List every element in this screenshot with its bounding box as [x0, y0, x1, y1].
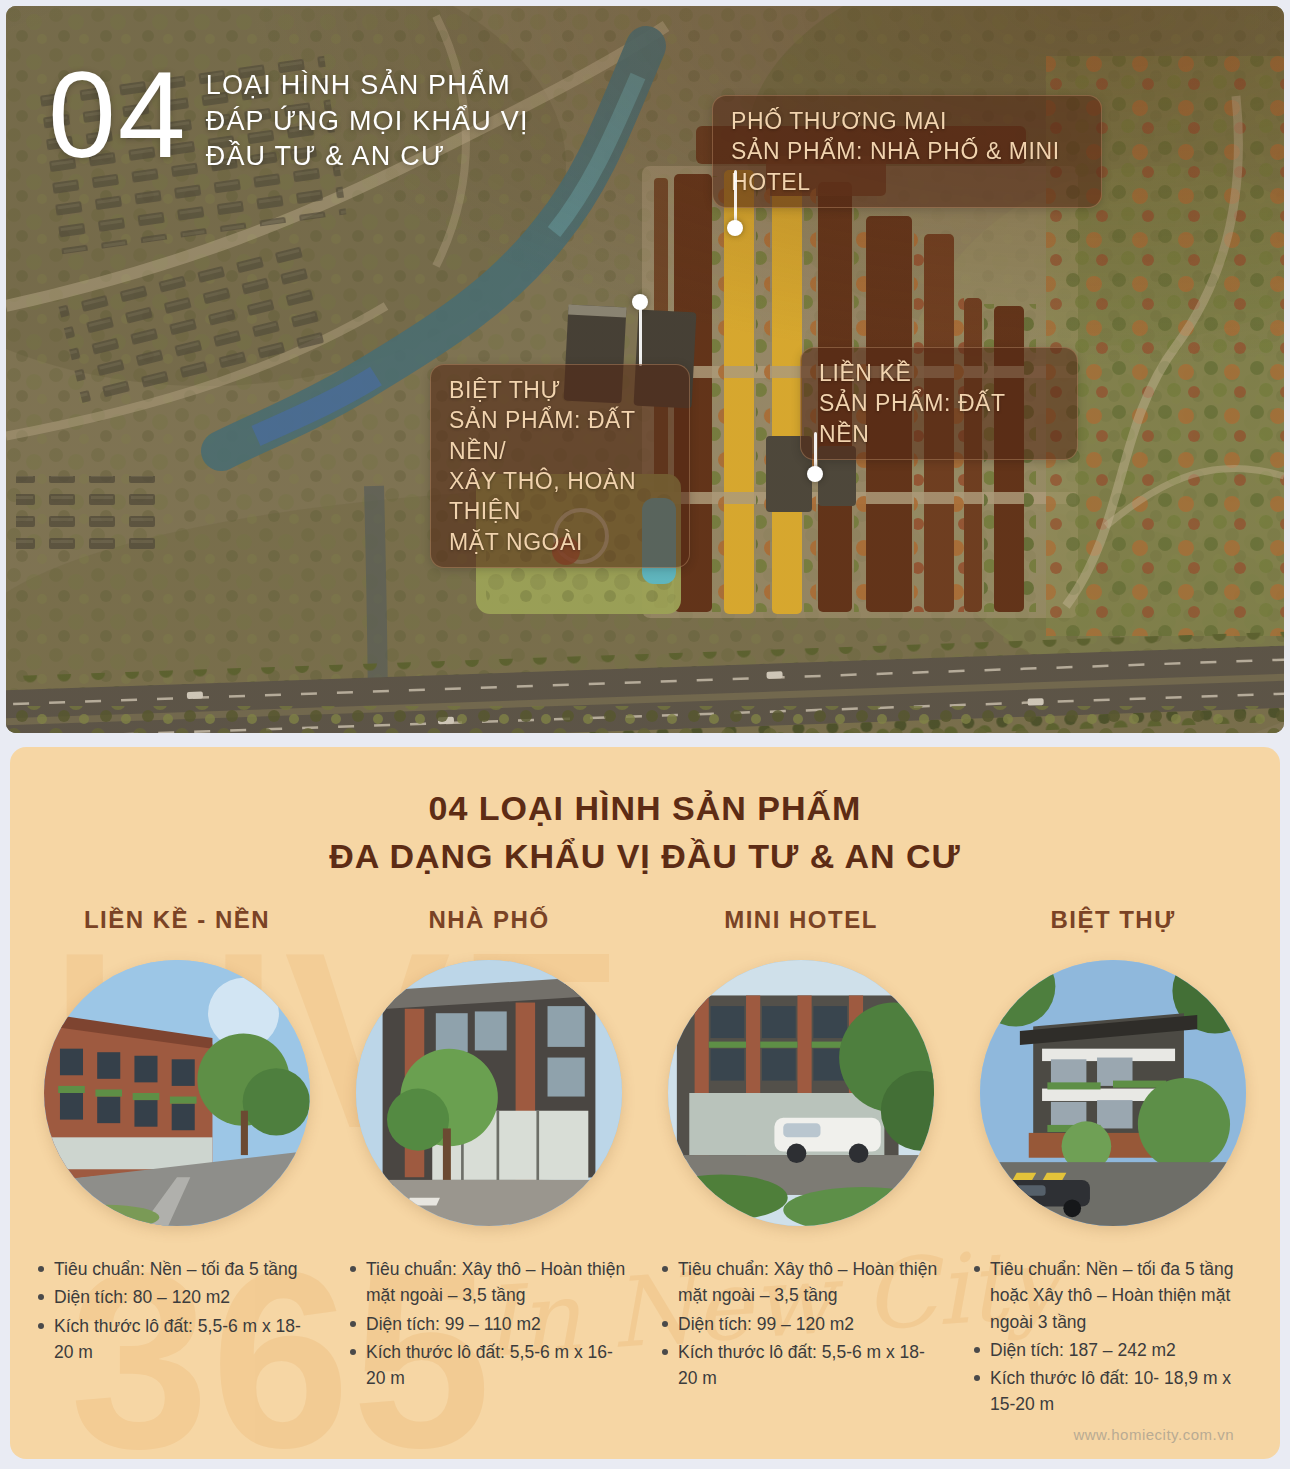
card-title-line-1: 04 LOẠI HÌNH SẢN PHẤM [10, 785, 1280, 833]
leader-line-pho-thuong-mai [734, 170, 737, 222]
photo-biet-thu [980, 960, 1246, 1226]
column-nha-pho: NHÀ PHỐ Tiêu chuẩn: X [340, 906, 638, 1420]
headline-line-2: ĐÁP ỨNG MỌI KHẨU VỊ [206, 104, 529, 140]
spec-list-nha-pho: Tiêu chuẩn: Xây thô – Hoàn thiện mặt ngo… [340, 1256, 638, 1393]
callout-pho-thuong-mai-title: PHỐ THƯƠNG MẠI [731, 106, 1083, 136]
spec-item: Tiêu chuẩn: Nền – tối đa 5 tầng hoặc Xây… [970, 1256, 1256, 1335]
column-biet-thu: BIỆT THỰ [964, 906, 1262, 1420]
spec-item: Diện tích: 187 – 242 m2 [970, 1337, 1256, 1363]
spec-item: Kích thước lô đất: 5,5-6 m x 18-20 m [658, 1339, 944, 1392]
website-link[interactable]: www.homiecity.com.vn [1073, 1426, 1234, 1443]
villa-illustration [980, 960, 1246, 1226]
mini-hotel-illustration [668, 960, 934, 1226]
leader-dot-pho-thuong-mai [727, 220, 743, 236]
townhouse-street-illustration [44, 960, 310, 1226]
callout-biet-thu-sub-3: MẶT NGOÀI [449, 527, 671, 557]
spec-item: Kích thước lô đất: 5,5-6 m x 18-20 m [34, 1313, 320, 1366]
product-columns: LIỀN KỀ - NỀN [28, 906, 1262, 1420]
callout-lien-ke-title: LIỀN KỀ [819, 358, 1059, 388]
spec-list-biet-thu: Tiêu chuẩn: Nền – tối đa 5 tầng hoặc Xây… [964, 1256, 1262, 1420]
photo-mini-hotel [668, 960, 934, 1226]
spec-item: Tiêu chuẩn: Nền – tối đa 5 tầng [34, 1256, 320, 1282]
spec-item: Diện tích: 99 – 110 m2 [346, 1311, 632, 1337]
masterplan-image: 04 LOẠI HÌNH SẢN PHẨM ĐÁP ỨNG MỌI KHẨU V… [6, 6, 1284, 733]
leader-dot-lien-ke [807, 466, 823, 482]
column-heading: NHÀ PHỐ [428, 906, 549, 934]
callout-biet-thu-sub-2: XÂY THÔ, HOÀN THIỆN [449, 466, 671, 527]
spec-item: Diện tích: 80 – 120 m2 [34, 1284, 320, 1310]
column-mini-hotel: MINI HOTEL [652, 906, 950, 1420]
column-lien-ke-nen: LIỀN KỀ - NỀN [28, 906, 326, 1420]
card-title-line-2: ĐA DẠNG KHẨU VỊ ĐẦU TƯ & AN CƯ [10, 833, 1280, 881]
spec-item: Tiêu chuẩn: Xây thô – Hoàn thiện mặt ngo… [346, 1256, 632, 1309]
spec-list-mini-hotel: Tiêu chuẩn: Xây thô – Hoàn thiện mặt ngo… [652, 1256, 950, 1393]
headline-line-3: ĐẦU TƯ & AN CƯ [206, 139, 529, 175]
shophouse-corner-illustration [356, 960, 622, 1226]
spec-item: Diện tích: 99 – 120 m2 [658, 1311, 944, 1337]
column-heading: BIỆT THỰ [1050, 906, 1175, 934]
callout-pho-thuong-mai-sub: SẢN PHẨM: NHÀ PHỐ & MINI HOTEL [731, 136, 1083, 197]
masterplan-headline: 04 LOẠI HÌNH SẢN PHẨM ĐÁP ỨNG MỌI KHẨU V… [48, 54, 529, 176]
callout-lien-ke-sub: SẢN PHẨM: ĐẤT NỀN [819, 388, 1059, 449]
leader-line-biet-thu [639, 308, 642, 366]
section-number: 04 [48, 54, 188, 176]
photo-lien-ke-nen [44, 960, 310, 1226]
column-heading: LIỀN KỀ - NỀN [84, 906, 270, 934]
spec-item: Tiêu chuẩn: Xây thô – Hoàn thiện mặt ngo… [658, 1256, 944, 1309]
spec-list-lien-ke-nen: Tiêu chuẩn: Nền – tối đa 5 tầng Diện tíc… [28, 1256, 326, 1367]
spec-item: Kích thước lô đất: 10- 18,9 m x 15-20 m [970, 1365, 1256, 1418]
spec-item: Kích thước lô đất: 5,5-6 m x 16-20 m [346, 1339, 632, 1392]
product-types-card: LIVE 365 In New City 04 LOẠI HÌNH SẢN PH… [10, 747, 1280, 1459]
callout-biet-thu: BIỆT THỰ SẢN PHẨM: ĐẤT NỀN/ XÂY THÔ, HOÀ… [430, 364, 690, 568]
card-title: 04 LOẠI HÌNH SẢN PHẤM ĐA DẠNG KHẨU VỊ ĐẦ… [10, 785, 1280, 880]
photo-nha-pho [356, 960, 622, 1226]
callout-biet-thu-sub-1: SẢN PHẨM: ĐẤT NỀN/ [449, 405, 671, 466]
callout-pho-thuong-mai: PHỐ THƯƠNG MẠI SẢN PHẨM: NHÀ PHỐ & MINI … [712, 95, 1102, 208]
callout-biet-thu-title: BIỆT THỰ [449, 375, 671, 405]
column-heading: MINI HOTEL [724, 906, 878, 934]
headline-line-1: LOẠI HÌNH SẢN PHẨM [206, 68, 529, 104]
callout-lien-ke: LIỀN KỀ SẢN PHẨM: ĐẤT NỀN [800, 347, 1078, 460]
